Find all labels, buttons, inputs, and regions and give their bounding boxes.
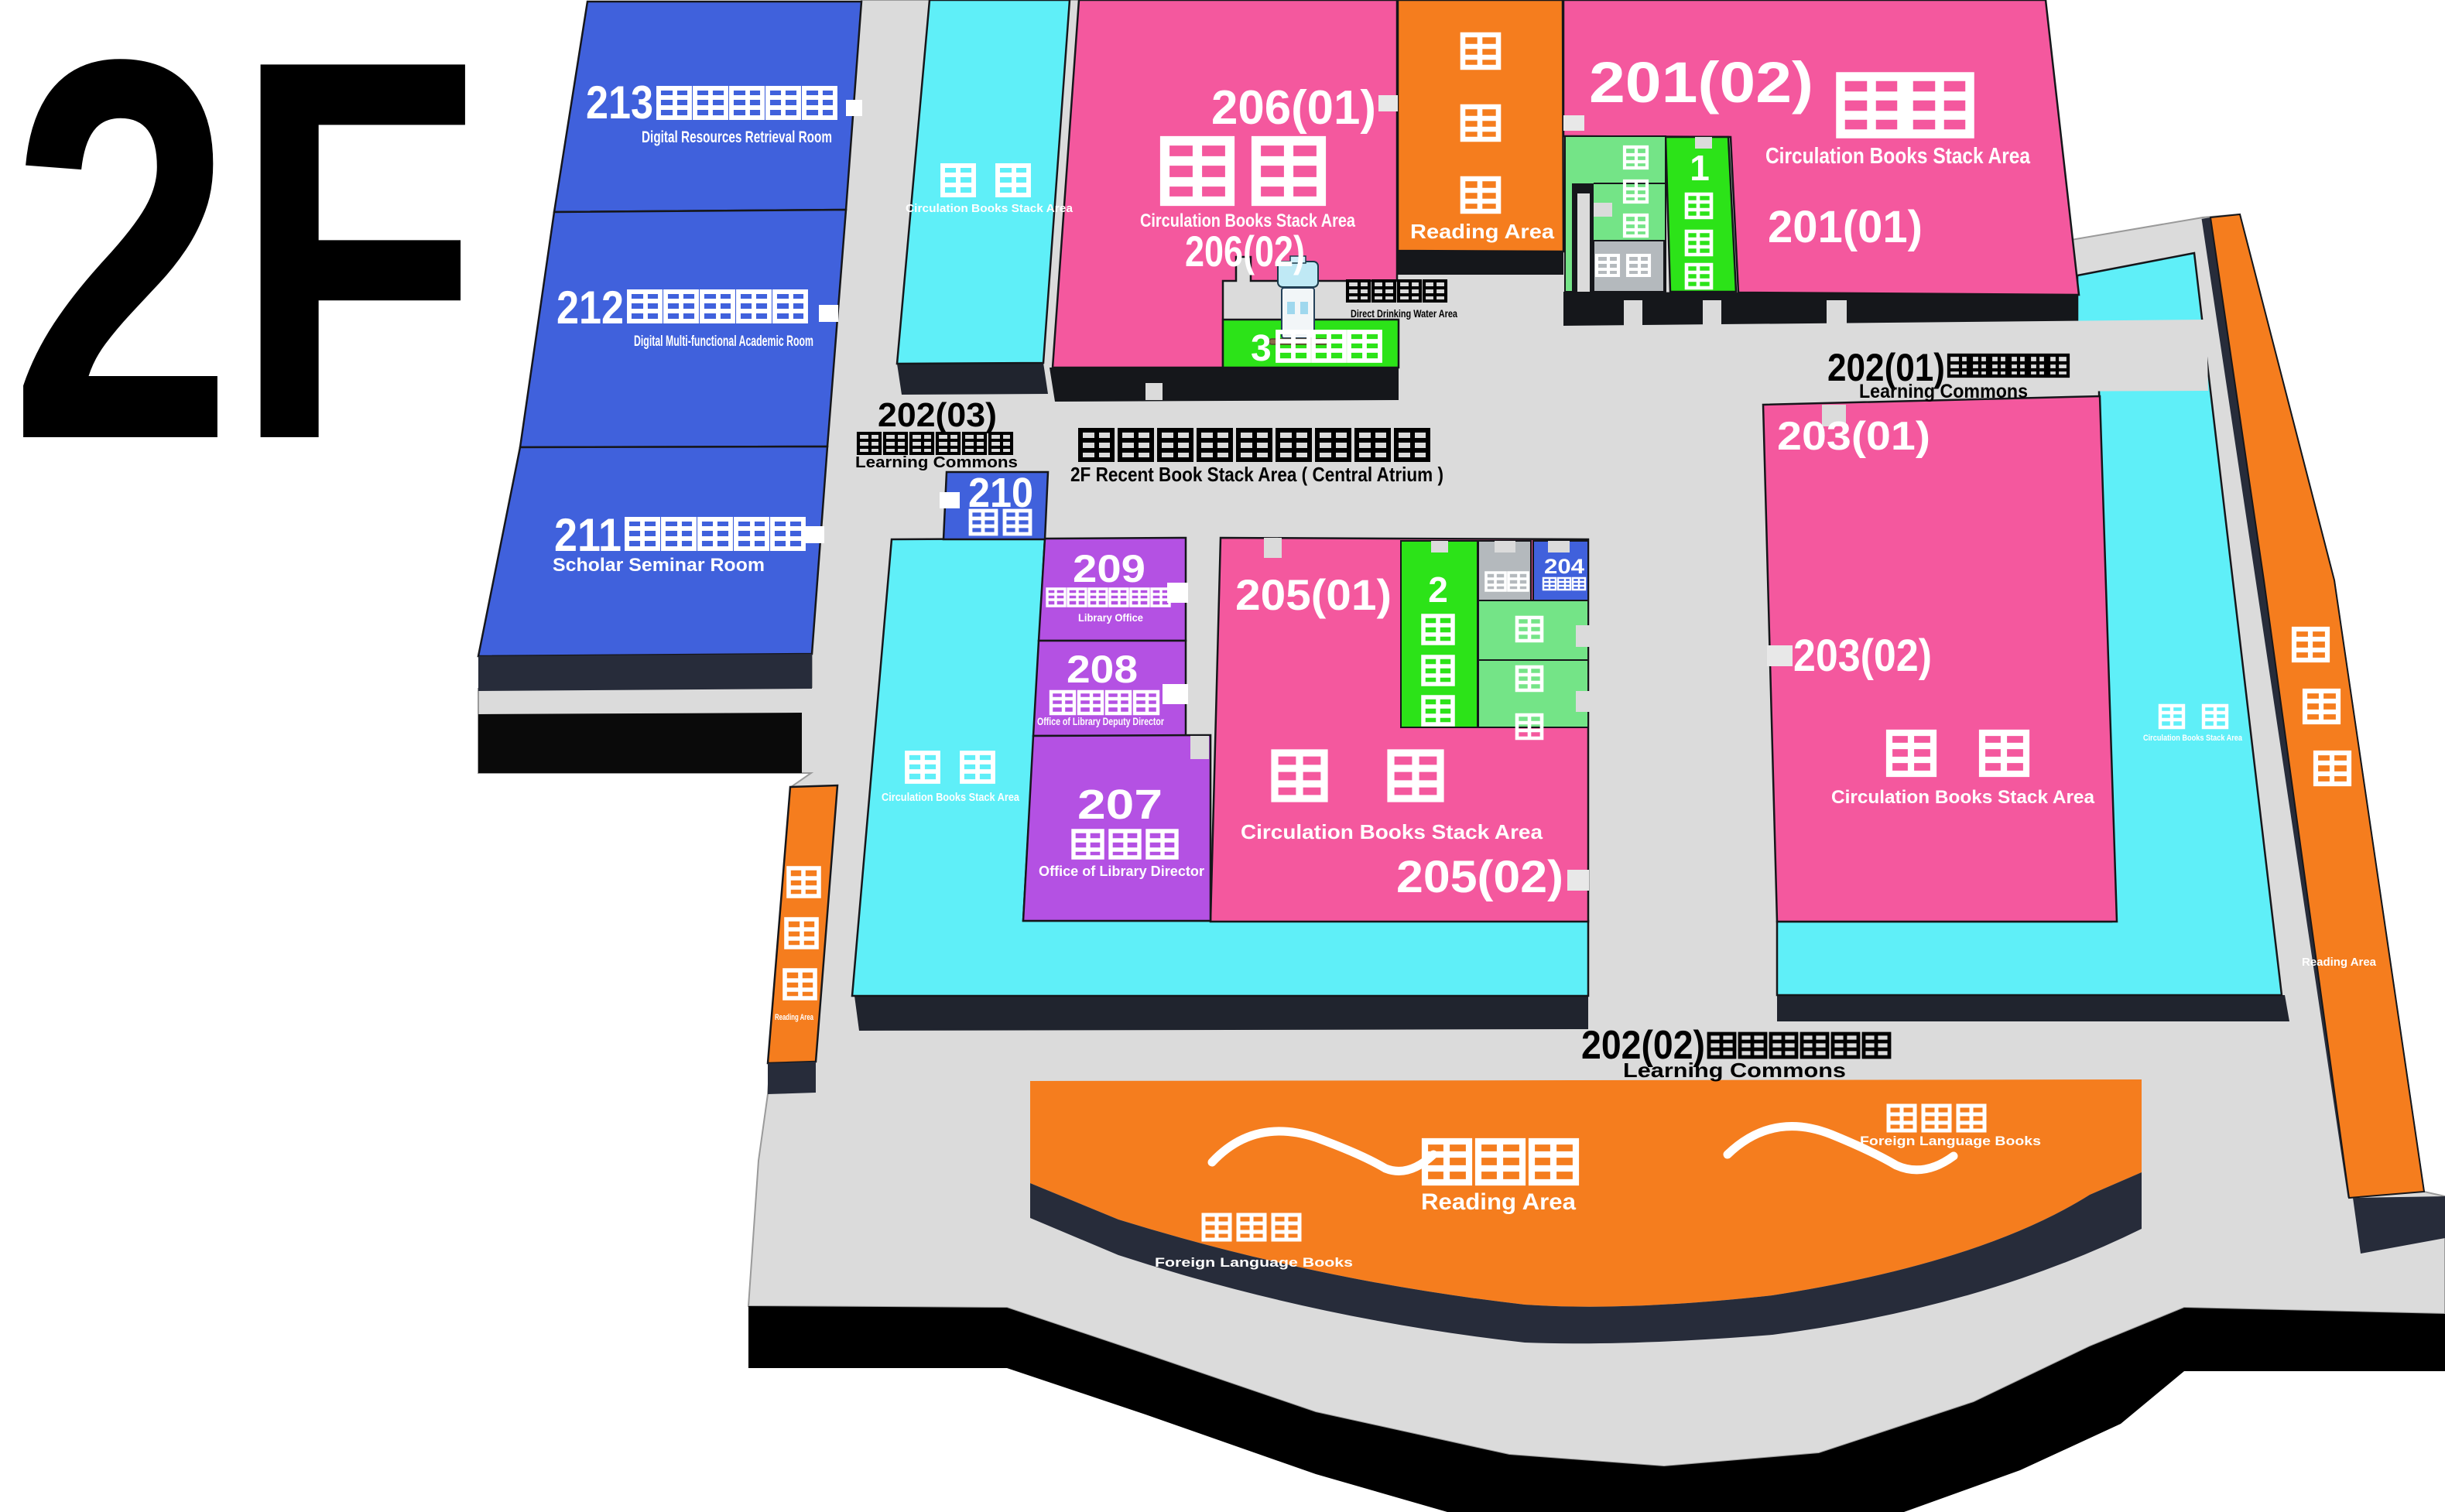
svg-text:Learning Commons: Learning Commons xyxy=(855,454,1018,471)
svg-text:Direct Drinking Water Area: Direct Drinking Water Area xyxy=(1351,308,1457,320)
svg-text:205(01): 205(01) xyxy=(1235,570,1392,619)
svg-text:Office of Library Deputy Direc: Office of Library Deputy Director xyxy=(1037,716,1165,727)
svg-text:1: 1 xyxy=(1690,148,1710,188)
svg-text:205(02): 205(02) xyxy=(1396,852,1563,902)
svg-text:2F: 2F xyxy=(9,0,480,552)
svg-text:Digital Multi-functional Acade: Digital Multi-functional Academic Room xyxy=(634,334,813,350)
svg-text:206(01): 206(01) xyxy=(1211,81,1376,135)
svg-text:Foreign Language Books: Foreign Language Books xyxy=(1860,1134,2041,1148)
svg-text:3: 3 xyxy=(1251,328,1272,369)
svg-text:213: 213 xyxy=(586,77,653,128)
svg-text:Reading Area: Reading Area xyxy=(2302,956,2377,969)
svg-text:209: 209 xyxy=(1073,547,1145,590)
svg-text:202(03): 202(03) xyxy=(878,396,997,434)
svg-text:Reading Area: Reading Area xyxy=(1421,1189,1576,1215)
svg-text:Circulation Books Stack Area: Circulation Books Stack Area xyxy=(1241,820,1543,843)
svg-text:207: 207 xyxy=(1077,782,1163,828)
svg-text:Scholar Seminar Room: Scholar Seminar Room xyxy=(553,555,765,576)
svg-text:201(01): 201(01) xyxy=(1768,202,1923,252)
svg-text:203(01): 203(01) xyxy=(1777,414,1930,459)
svg-text:Circulation Books Stack Area: Circulation Books Stack Area xyxy=(1831,787,2095,808)
svg-text:Learning Commons: Learning Commons xyxy=(1859,381,2028,402)
svg-text:Reading Area: Reading Area xyxy=(775,1013,814,1022)
svg-text:Reading Area: Reading Area xyxy=(1410,220,1555,243)
svg-text:Learning Commons: Learning Commons xyxy=(1623,1059,1846,1082)
svg-text:204: 204 xyxy=(1544,555,1584,578)
svg-text:Library Office: Library Office xyxy=(1078,611,1143,624)
svg-text:208: 208 xyxy=(1067,648,1138,691)
svg-text:2: 2 xyxy=(1428,570,1448,610)
svg-text:2F Recent Book Stack Area ( Ce: 2F Recent Book Stack Area ( Central Atri… xyxy=(1070,463,1443,486)
svg-text:212: 212 xyxy=(556,282,624,334)
svg-text:Digital Resources Retrieval Ro: Digital Resources Retrieval Room xyxy=(642,128,832,146)
svg-text:Foreign Language Books: Foreign Language Books xyxy=(1155,1255,1353,1270)
svg-text:Office of Library Director: Office of Library Director xyxy=(1039,864,1204,879)
svg-text:Circulation Books Stack Area: Circulation Books Stack Area xyxy=(882,792,1020,804)
svg-text:211: 211 xyxy=(554,509,622,561)
svg-text:Circulation Books Stack Area: Circulation Books Stack Area xyxy=(2143,734,2243,743)
svg-text:201(02): 201(02) xyxy=(1589,50,1813,115)
svg-text:203(02): 203(02) xyxy=(1793,631,1932,681)
svg-text:Circulation Books Stack Area: Circulation Books Stack Area xyxy=(1765,144,2031,169)
svg-text:Circulation Books Stack Area: Circulation Books Stack Area xyxy=(906,202,1074,215)
svg-text:206(02): 206(02) xyxy=(1185,227,1305,275)
